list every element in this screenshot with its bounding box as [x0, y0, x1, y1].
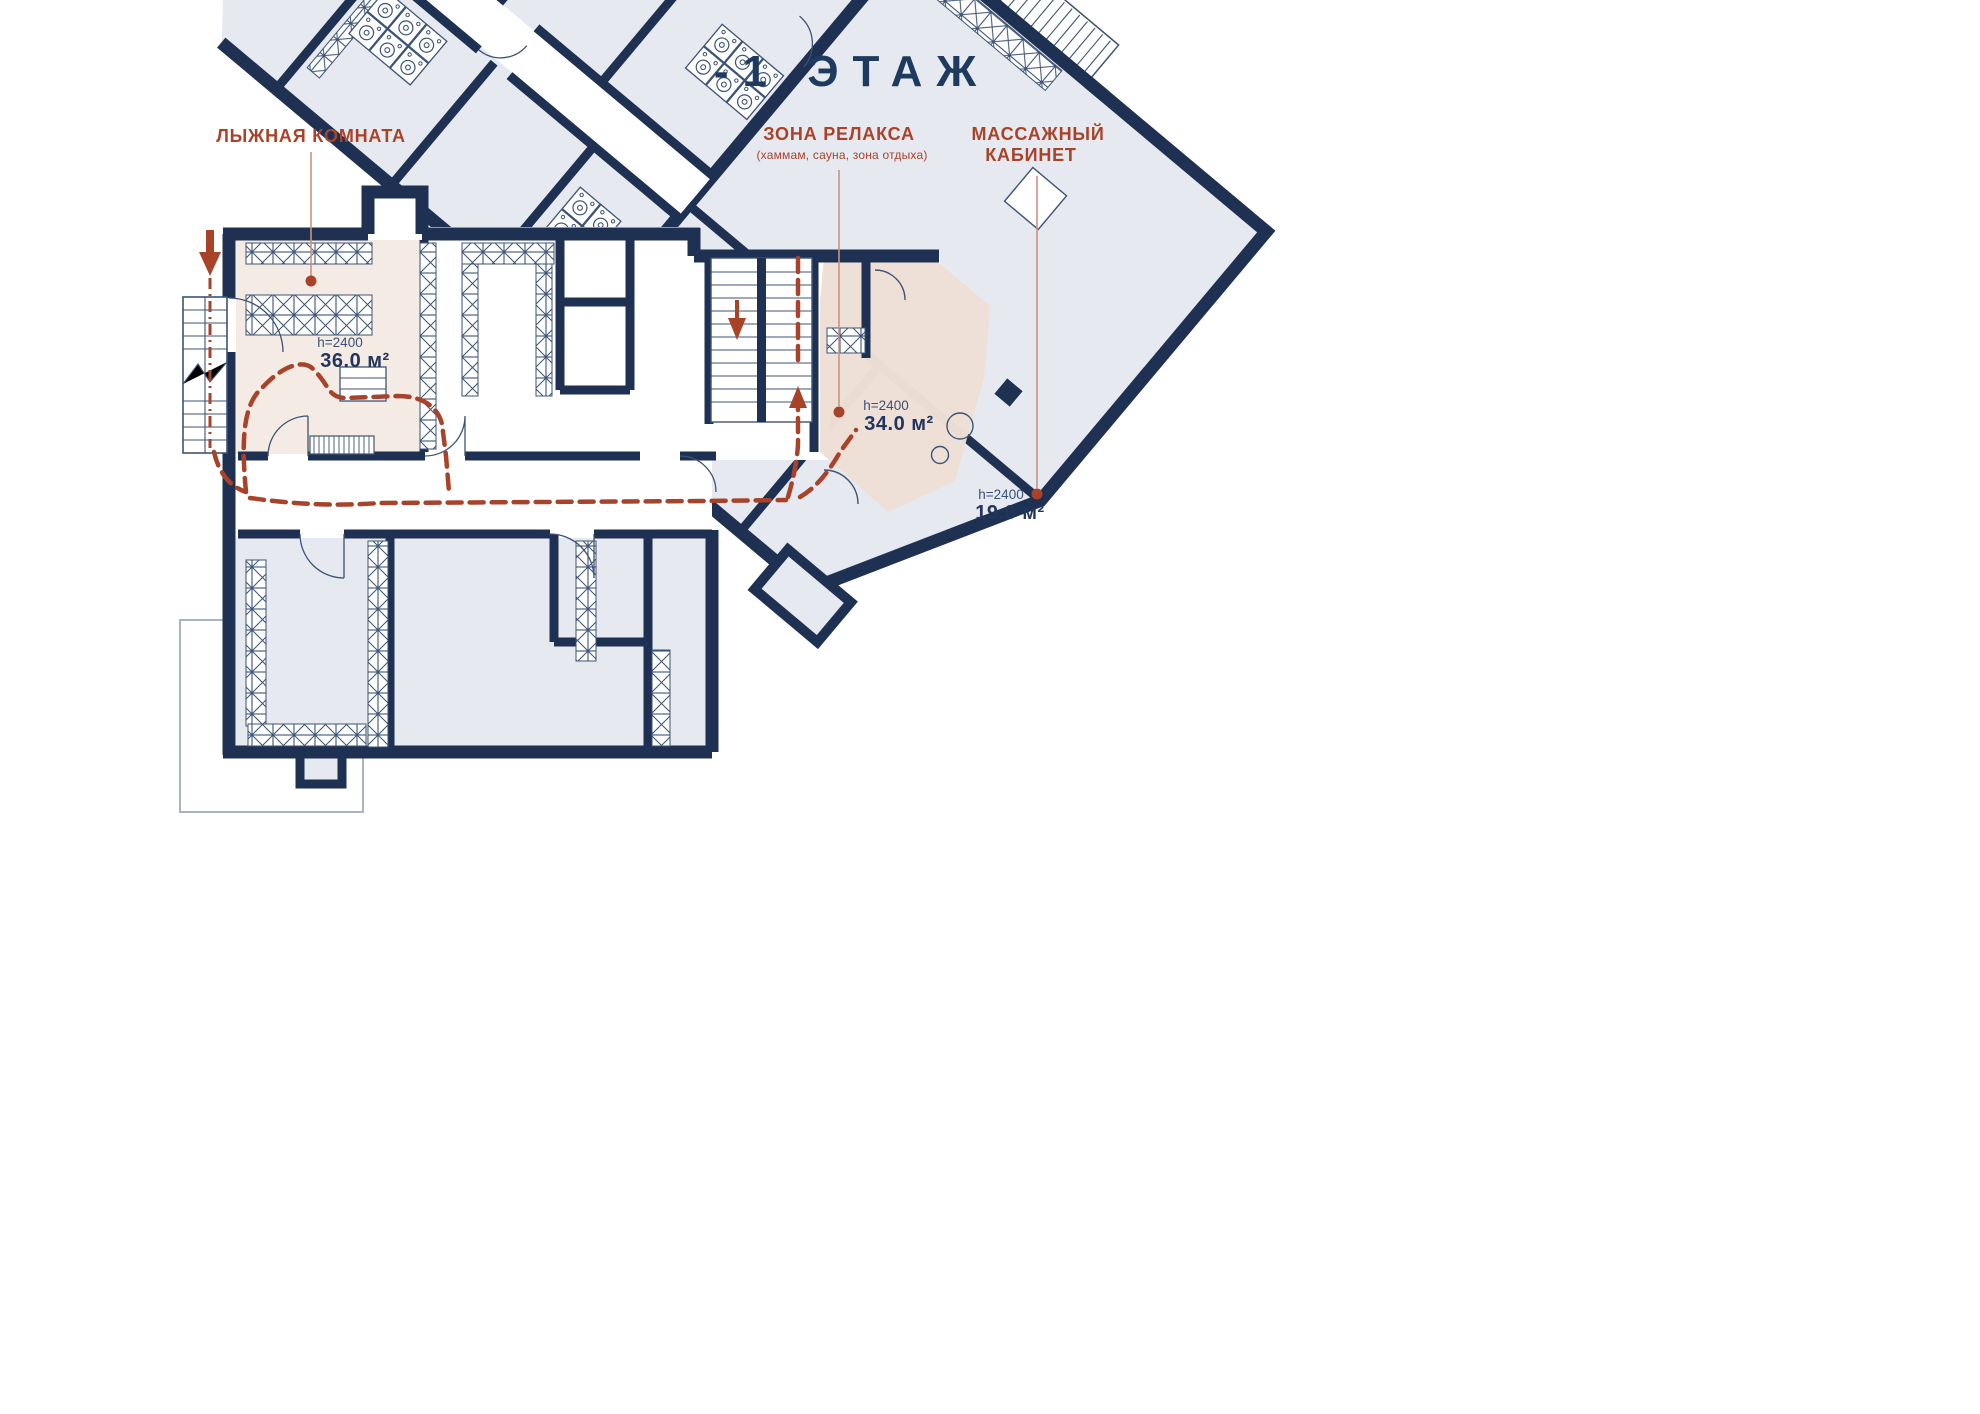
area-ski: 36.0 м² [320, 350, 389, 372]
entrance-arrow-down [199, 252, 221, 276]
corridor [238, 462, 706, 530]
height-relax: h=2400 [863, 398, 908, 413]
leader-dot-ski [306, 276, 317, 287]
height-ski: h=2400 [317, 335, 362, 350]
floor-plan-page: -1 ЭТАЖ ЛЫЖНАЯ КОМНАТА ЗОНА РЕЛАКСА (хам… [0, 0, 1980, 1414]
label-relax-sub: (хаммам, сауна, зона отдыха) [756, 148, 927, 162]
label-massage-2: КАБИНЕТ [985, 145, 1076, 165]
leader-dot-massage [1032, 489, 1043, 500]
area-massage: 19.0 м² [975, 502, 1044, 524]
entrance-stair [183, 297, 227, 453]
label-relax-zone: ЗОНА РЕЛАКСА [763, 124, 915, 144]
height-massage: h=2400 [978, 487, 1023, 502]
leader-dot-relax [834, 407, 845, 418]
label-ski-room: ЛЫЖНАЯ КОМНАТА [216, 126, 406, 146]
page-title: -1 ЭТАЖ [714, 47, 990, 96]
label-massage-1: МАССАЖНЫЙ [971, 123, 1104, 144]
floor-plan-svg: -1 ЭТАЖ ЛЫЖНАЯ КОМНАТА ЗОНА РЕЛАКСА (хам… [0, 0, 1980, 1414]
area-relax: 34.0 м² [864, 413, 933, 435]
